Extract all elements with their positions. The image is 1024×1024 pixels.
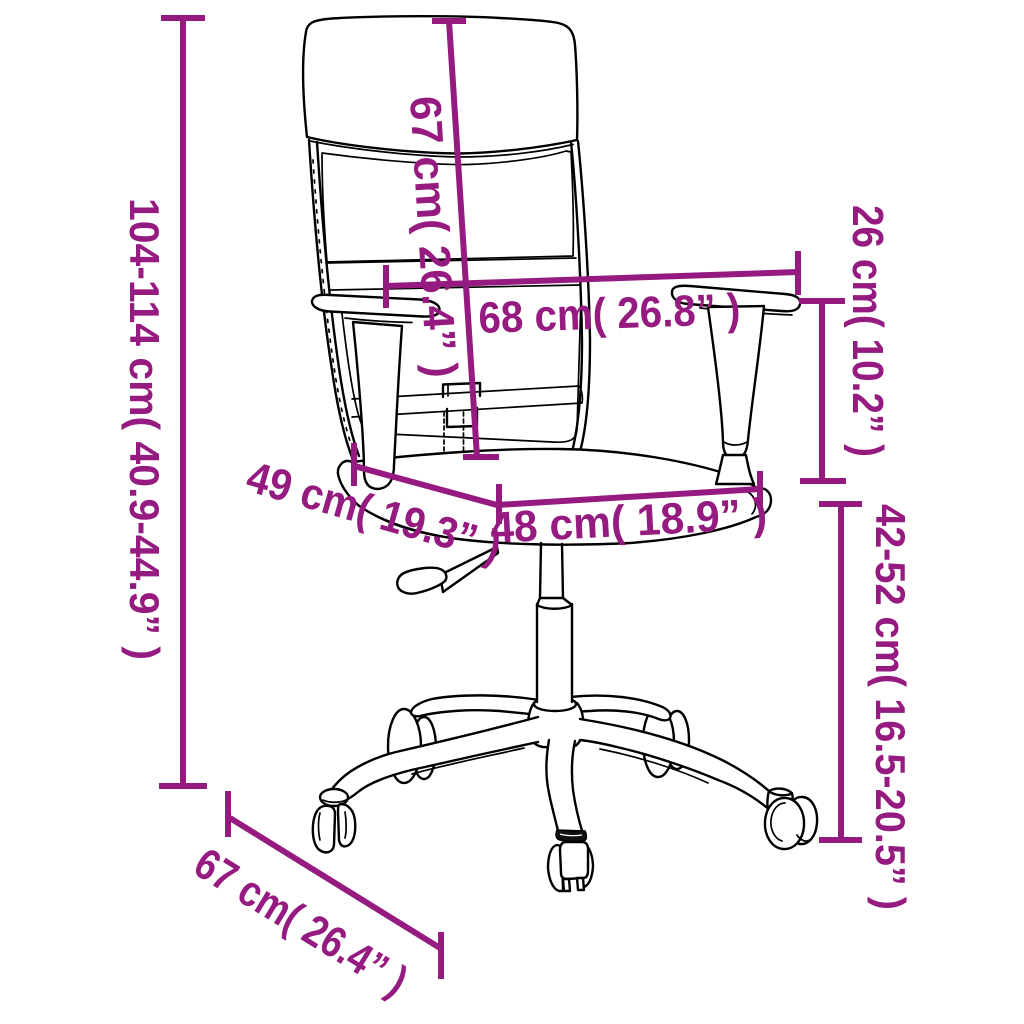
svg-text:68 cm( 26.8” ): 68 cm( 26.8” ) — [478, 285, 742, 343]
svg-text:26 cm( 10.2” ): 26 cm( 10.2” ) — [843, 205, 892, 457]
svg-text:104-114 cm( 40.9-44.9” ): 104-114 cm( 40.9-44.9” ) — [121, 198, 168, 660]
svg-text:42-52 cm( 16.5-20.5” ): 42-52 cm( 16.5-20.5” ) — [867, 504, 914, 910]
